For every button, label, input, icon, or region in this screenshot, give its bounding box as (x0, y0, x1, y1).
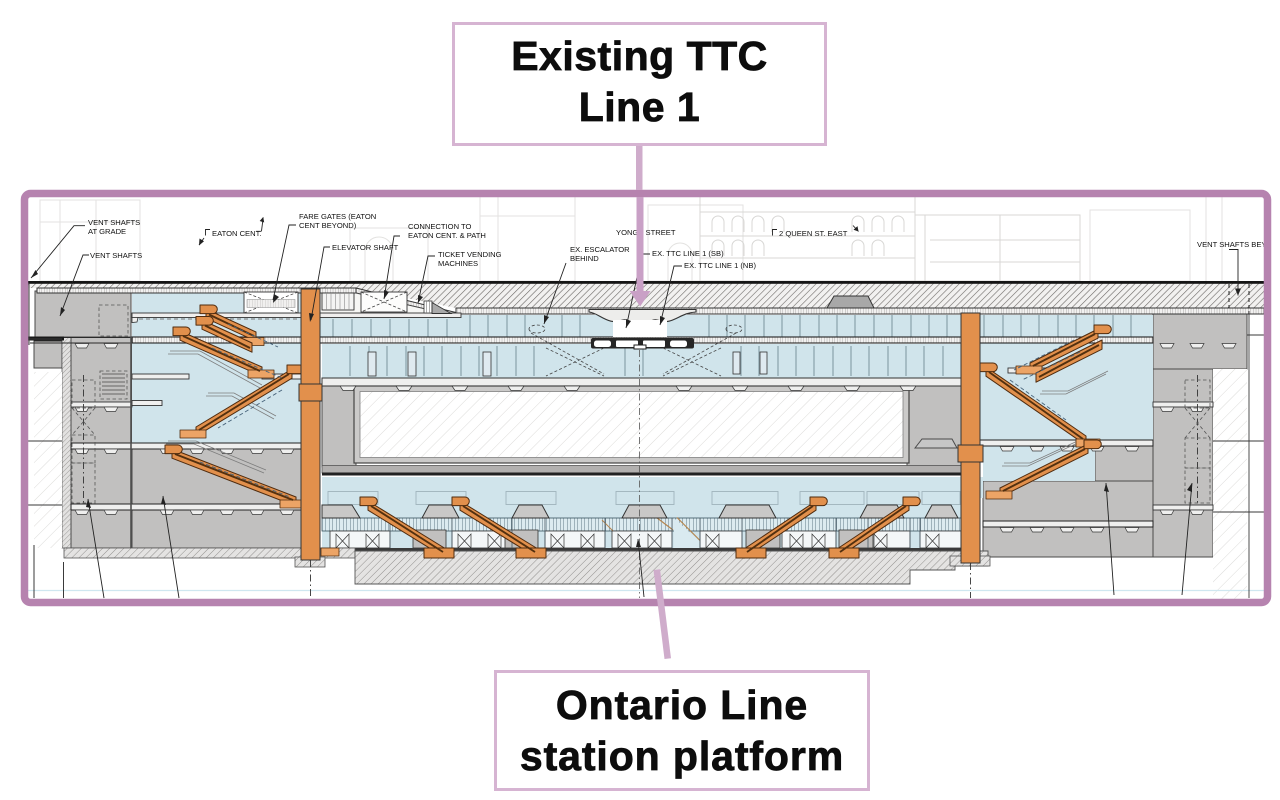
svg-text:EATON CENT.: EATON CENT. (212, 229, 262, 238)
svg-text:CENT BEYOND): CENT BEYOND) (299, 221, 357, 230)
svg-text:YONGE STREET: YONGE STREET (616, 228, 676, 237)
svg-text:MACHINES: MACHINES (438, 259, 478, 268)
svg-text:CONNECTION TO: CONNECTION TO (408, 222, 472, 231)
svg-text:VENT SHAFTS BEYO: VENT SHAFTS BEYO (1197, 240, 1272, 249)
svg-text:2 QUEEN ST. EAST: 2 QUEEN ST. EAST (779, 229, 848, 238)
svg-text:VENT SHAFTS: VENT SHAFTS (90, 251, 142, 260)
svg-text:BEHIND: BEHIND (570, 254, 599, 263)
svg-text:EX. TTC LINE 1 (SB): EX. TTC LINE 1 (SB) (652, 249, 724, 258)
svg-text:VENT SHAFTS: VENT SHAFTS (88, 218, 140, 227)
svg-text:TICKET VENDING: TICKET VENDING (438, 250, 502, 259)
svg-text:ELEVATOR SHAFT: ELEVATOR SHAFT (332, 243, 399, 252)
svg-text:EATON CENT. & PATH: EATON CENT. & PATH (408, 231, 486, 240)
svg-text:EX. ESCALATOR: EX. ESCALATOR (570, 245, 630, 254)
svg-text:FARE GATES (EATON: FARE GATES (EATON (299, 212, 376, 221)
svg-text:AT GRADE: AT GRADE (88, 227, 126, 236)
svg-text:EX. TTC LINE 1 (NB): EX. TTC LINE 1 (NB) (684, 261, 756, 270)
